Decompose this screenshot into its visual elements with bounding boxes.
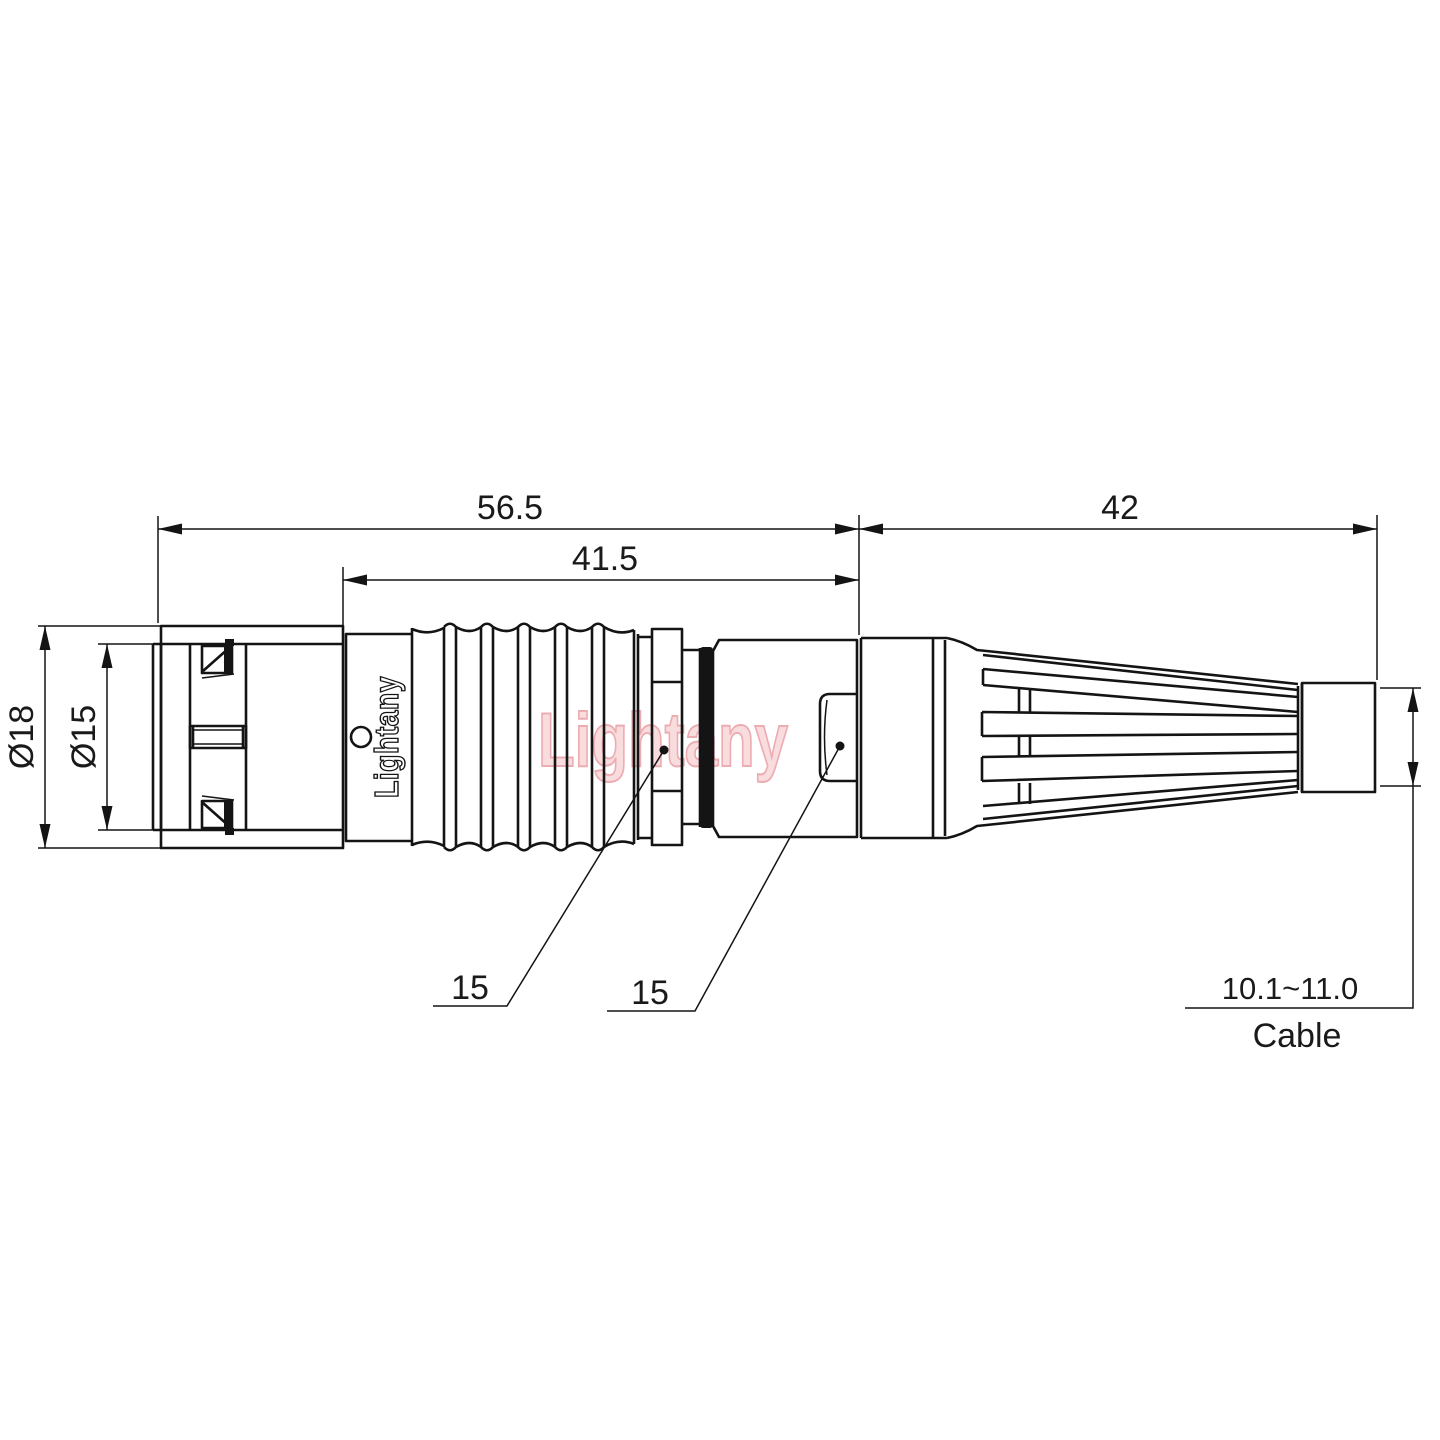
latch-clips	[202, 639, 234, 835]
dim-cable-range: 10.1~11.0	[1222, 971, 1358, 1006]
cable-stub	[1302, 683, 1375, 792]
leader-dot	[660, 746, 669, 755]
dim-outer-diameter: Ø18	[3, 705, 41, 769]
dimension-boot-42: 42	[859, 489, 1377, 680]
dimension-inner-diameter: Ø15	[65, 644, 155, 830]
strain-relief-boot	[947, 638, 1302, 838]
brand-label: Lightany	[368, 676, 405, 798]
dimension-overall-56-5: 56.5	[158, 489, 1377, 635]
boot-holder	[861, 638, 947, 838]
dim-boot-length: 42	[1101, 489, 1139, 527]
dim-inner-diameter: Ø15	[65, 705, 103, 769]
dim-back-flats: 15	[631, 974, 669, 1012]
cable-label: Cable	[1253, 1017, 1342, 1055]
middle-slot	[190, 726, 246, 748]
watermark-text: Lightany	[538, 698, 788, 783]
dimension-body-41-5: 41.5	[343, 540, 859, 630]
connector-engineering-drawing: Lightany Ligh	[0, 0, 1440, 1440]
dim-overall-length: 56.5	[477, 489, 543, 527]
front-sleeve	[153, 626, 343, 848]
leader-dot	[836, 742, 845, 751]
technical-drawing-page: Lightany Ligh	[0, 0, 1440, 1440]
dim-front-flats: 15	[451, 969, 489, 1007]
o-ring-seal	[700, 647, 713, 828]
watermark: Lightany	[538, 698, 788, 783]
mid-body: Lightany	[346, 628, 412, 846]
dim-body-length: 41.5	[572, 540, 638, 578]
